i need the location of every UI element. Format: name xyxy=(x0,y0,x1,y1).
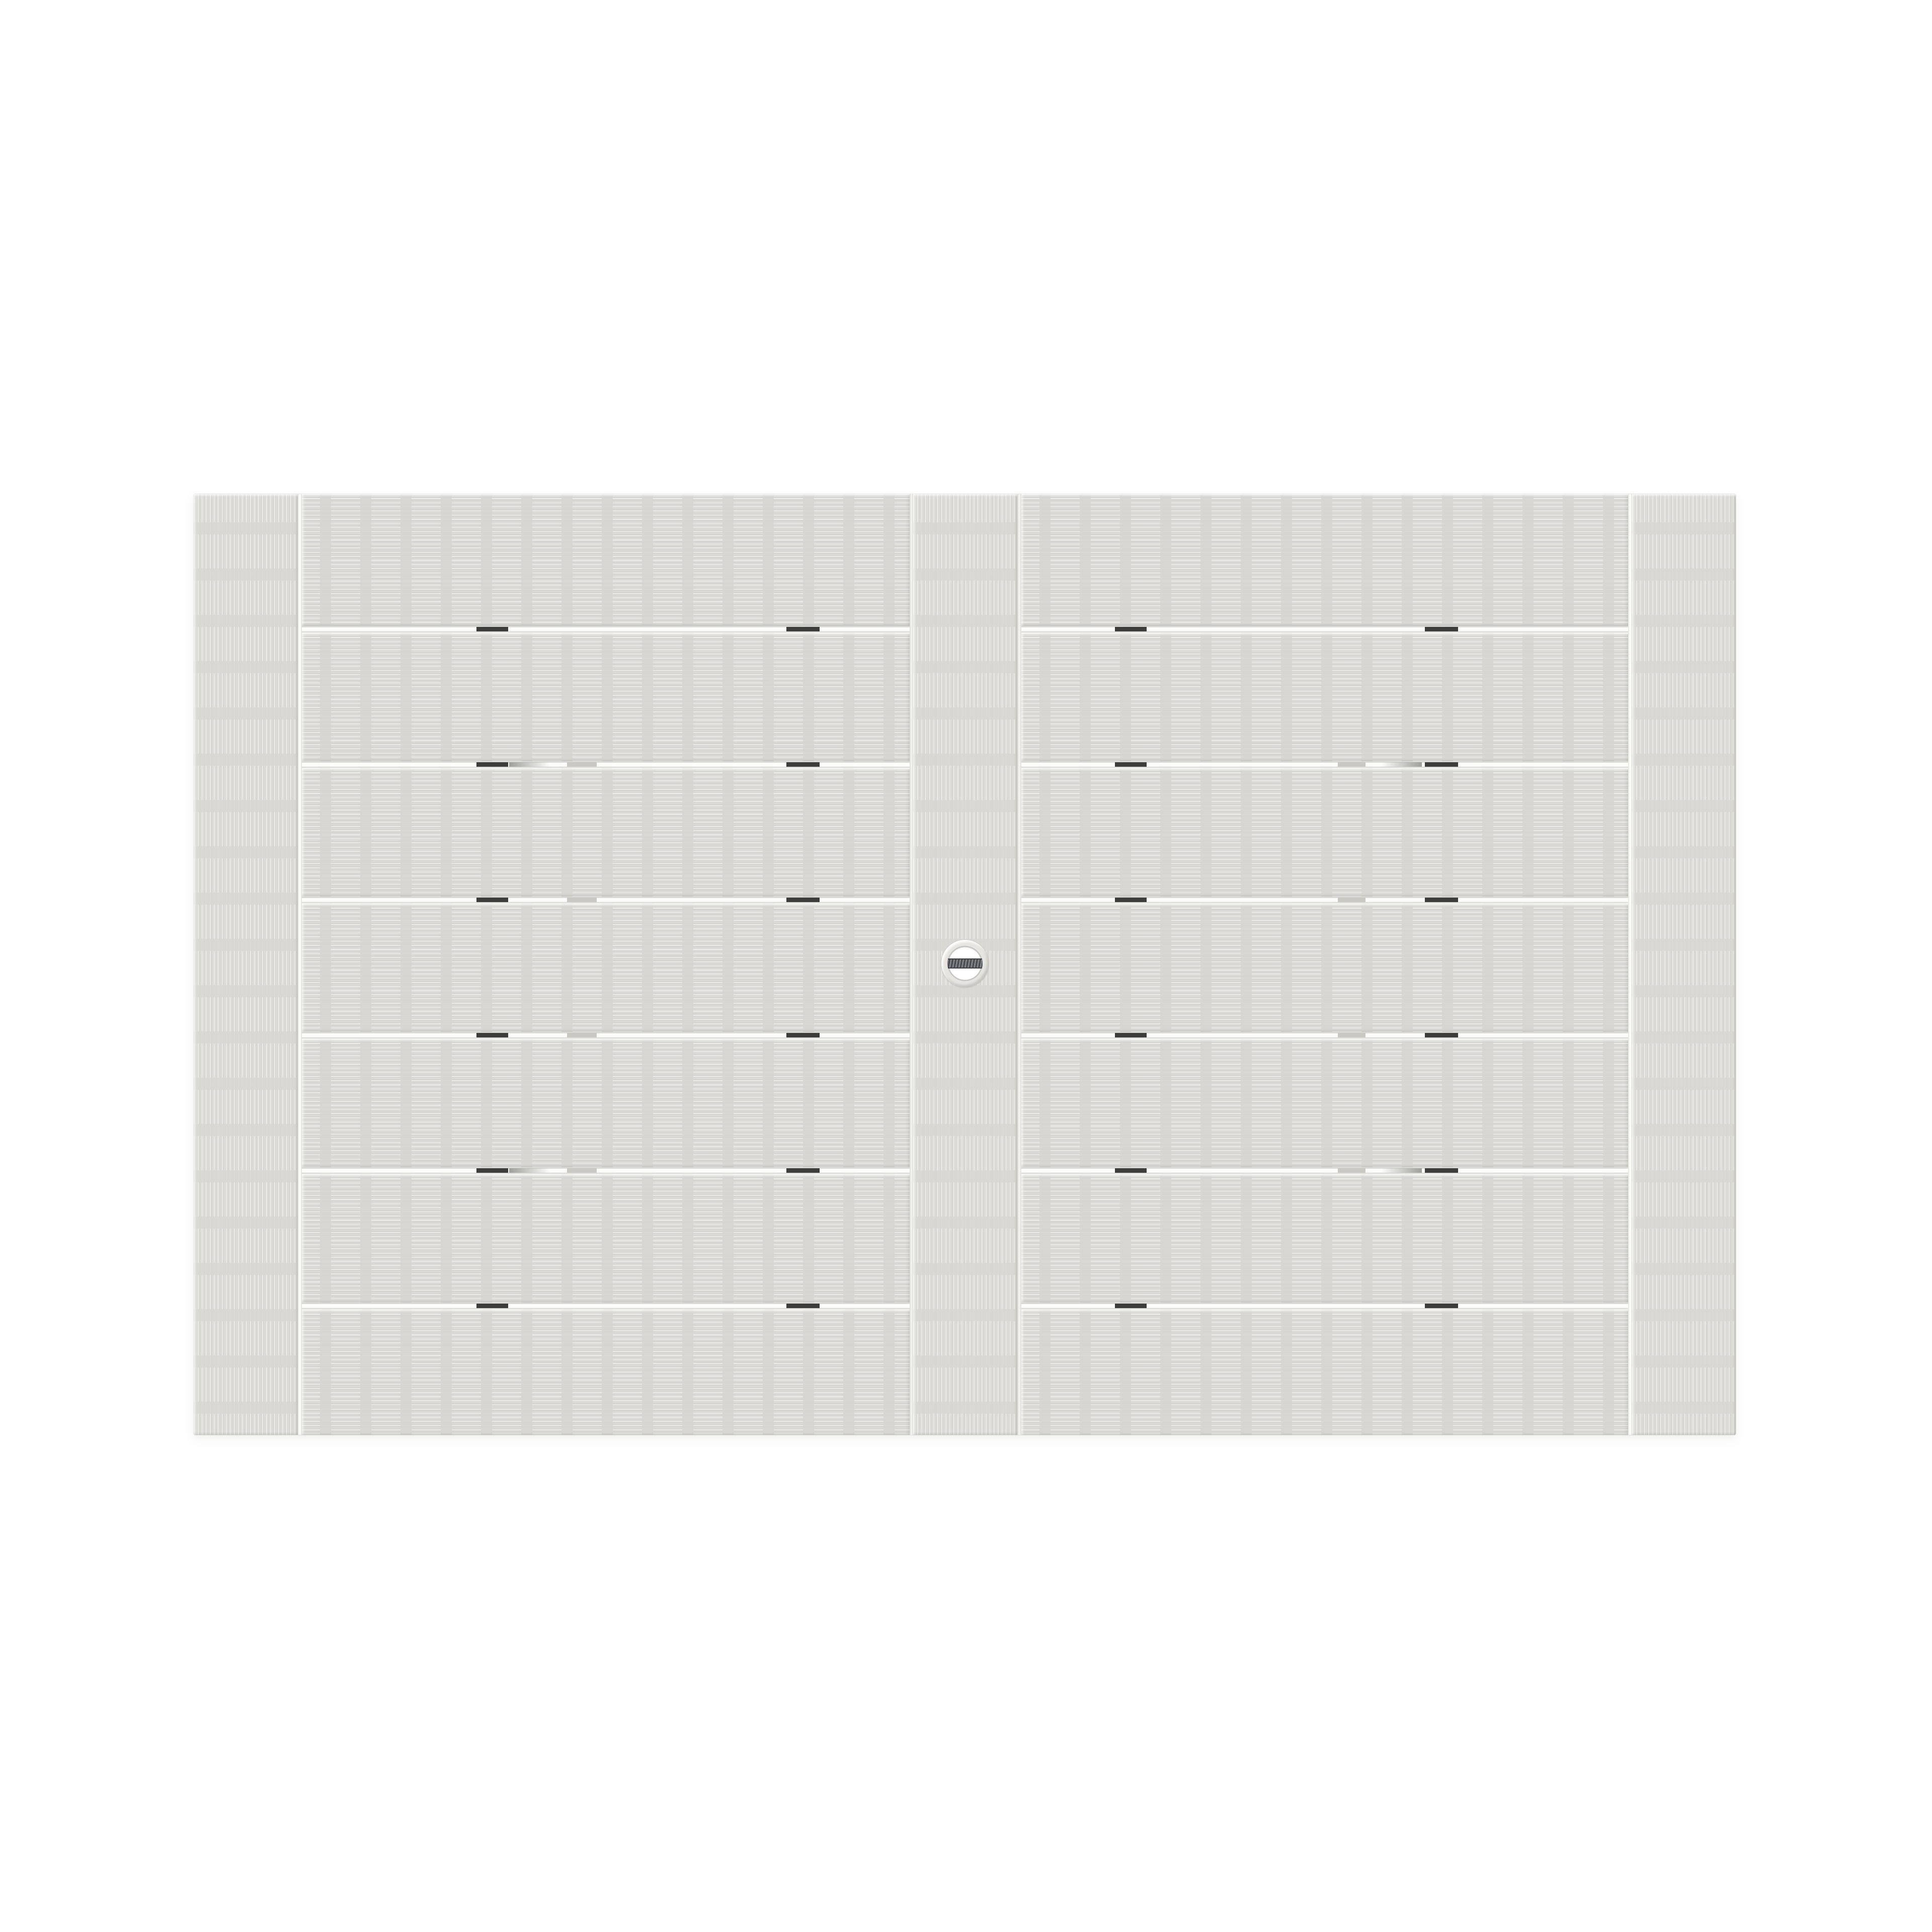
spacer-dash xyxy=(567,898,597,902)
slat xyxy=(1021,1039,1628,1167)
spacer-dash xyxy=(509,1168,549,1173)
spacer-dash xyxy=(786,1304,820,1308)
slat xyxy=(302,494,910,626)
slat-gap xyxy=(1021,1032,1628,1039)
spacer-dash xyxy=(786,898,820,902)
spacer-dash xyxy=(1425,762,1458,767)
table-top xyxy=(194,494,1736,1435)
spacer-dash xyxy=(1425,898,1458,902)
slat-gap xyxy=(302,897,910,904)
spacer-dash xyxy=(567,762,597,767)
spacer-dash xyxy=(1425,1033,1458,1037)
spacer-dash xyxy=(786,1168,820,1173)
slat-gap xyxy=(302,761,910,768)
right-slat-leaf xyxy=(1021,494,1628,1435)
slat xyxy=(1021,768,1628,897)
spacer-dash xyxy=(476,762,508,767)
spacer-dash xyxy=(1382,1168,1422,1173)
slat xyxy=(302,768,910,897)
center-rail-right-seam xyxy=(1017,494,1021,1435)
spacer-dash xyxy=(1115,1304,1147,1308)
spacer-dash xyxy=(1425,1304,1458,1308)
right-rail-seam xyxy=(1628,494,1632,1435)
spacer-dash xyxy=(1338,1168,1365,1173)
product-photo-canvas xyxy=(0,0,1932,1932)
spacer-dash xyxy=(1425,1168,1458,1173)
slat xyxy=(302,904,910,1032)
slat xyxy=(302,1174,910,1303)
spacer-dash xyxy=(1115,1033,1147,1037)
spacer-dash xyxy=(476,898,508,902)
left-slat-leaf xyxy=(302,494,910,1435)
spacer-dash xyxy=(1338,762,1365,767)
spacer-dash xyxy=(567,1168,597,1173)
slat-gap xyxy=(302,1303,910,1310)
slat-gap xyxy=(1021,761,1628,768)
right-rail xyxy=(1632,494,1736,1435)
spacer-dash xyxy=(1382,762,1422,767)
spacer-dash xyxy=(1338,898,1365,902)
umbrella-hole-grommet xyxy=(941,940,989,987)
slat xyxy=(1021,494,1628,626)
spacer-dash xyxy=(1115,627,1147,631)
slat xyxy=(302,1039,910,1167)
slat-gap xyxy=(1021,1303,1628,1310)
spacer-dash xyxy=(1338,1033,1365,1037)
spacer-dash xyxy=(476,1033,508,1037)
left-rail-seam xyxy=(298,494,302,1435)
spacer-dash xyxy=(1115,1168,1147,1173)
slat xyxy=(1021,1174,1628,1303)
slat xyxy=(1021,1310,1628,1435)
spacer-dash xyxy=(476,1168,508,1173)
spacer-dash xyxy=(786,762,820,767)
slat-gap xyxy=(302,1032,910,1039)
spacer-dash xyxy=(476,627,508,631)
spacer-dash xyxy=(786,1033,820,1037)
center-rail xyxy=(913,494,1017,1435)
slat-gap xyxy=(1021,626,1628,633)
spacer-dash xyxy=(1115,898,1147,902)
spacer-dash xyxy=(1115,762,1147,767)
spacer-dash xyxy=(786,627,820,631)
threaded-rod xyxy=(947,958,983,969)
slat-gap xyxy=(1021,897,1628,904)
slat xyxy=(302,1310,910,1435)
slat-gap xyxy=(302,1167,910,1174)
center-rail-left-seam xyxy=(910,494,913,1435)
slat xyxy=(302,633,910,761)
umbrella-hole xyxy=(947,946,983,981)
left-rail xyxy=(194,494,298,1435)
slat-gap xyxy=(302,626,910,633)
spacer-dash xyxy=(567,1033,597,1037)
spacer-dash xyxy=(509,762,549,767)
slat xyxy=(1021,633,1628,761)
spacer-dash xyxy=(1425,627,1458,631)
slat xyxy=(1021,904,1628,1032)
spacer-dash xyxy=(476,1304,508,1308)
slat-gap xyxy=(1021,1167,1628,1174)
